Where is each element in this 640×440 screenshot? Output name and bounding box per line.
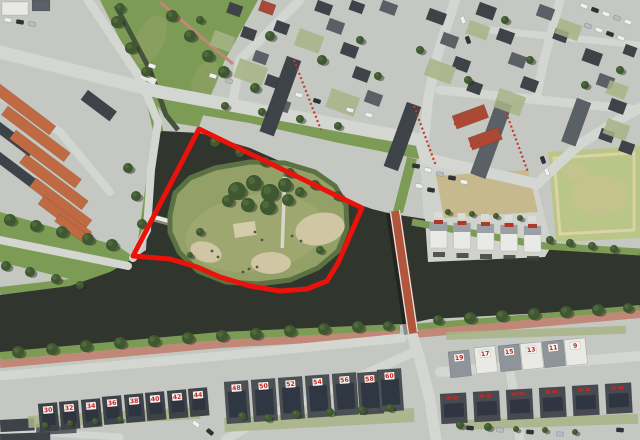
house-number: 56 [340, 377, 349, 385]
tree-highlight [116, 339, 121, 344]
roof-number-marking [486, 394, 491, 397]
solar-panels [336, 383, 356, 410]
tree-highlight [624, 304, 629, 309]
house-number-placard: 50 [258, 382, 269, 391]
play-equipment [242, 271, 245, 274]
house-number-placard: 58 [364, 375, 375, 384]
roof [32, 0, 50, 11]
roof-number-marking [611, 386, 616, 389]
house-number: 48 [232, 385, 241, 393]
roof [2, 2, 28, 15]
solar-panels [444, 403, 465, 418]
house-number-placard: 11 [548, 343, 559, 352]
tree-highlight [197, 229, 201, 233]
solar-panels [106, 406, 120, 419]
tree-highlight [243, 200, 249, 206]
house-number-placard: 19 [454, 353, 465, 362]
tree-highlight [222, 103, 226, 107]
house-number-placard: 34 [86, 402, 97, 411]
tree-highlight [26, 268, 31, 273]
tree-highlight [2, 262, 7, 267]
tree-highlight [611, 246, 615, 250]
tree-highlight [594, 306, 599, 311]
solar-panels [149, 402, 163, 415]
house [572, 385, 600, 416]
tree-highlight [224, 197, 229, 202]
house [440, 393, 468, 424]
tree-highlight [239, 413, 243, 417]
house-number: 38 [130, 398, 139, 406]
solar-panels [609, 393, 630, 408]
garden-shed [481, 214, 489, 220]
tree-highlight [266, 32, 271, 37]
tree-highlight [218, 332, 223, 337]
tree-highlight [547, 237, 551, 241]
house-number-placard: 30 [43, 406, 54, 415]
tree-highlight [197, 17, 201, 21]
tree-highlight [457, 422, 461, 426]
garden-shed [458, 213, 466, 219]
solar-panels [282, 387, 302, 414]
house-number-placard: 42 [172, 393, 183, 402]
solar-panels [361, 382, 381, 409]
house-number-placard: 17 [480, 349, 491, 358]
tree-highlight [357, 37, 361, 41]
tree-highlight [48, 345, 53, 350]
roof-number-marking [479, 394, 484, 397]
house-number: 19 [455, 354, 464, 362]
field-dry-patch [572, 175, 628, 215]
tree-highlight [6, 216, 11, 221]
play-equipment [211, 250, 214, 253]
dock [527, 256, 539, 261]
tree-highlight [446, 210, 449, 213]
tree-highlight [327, 409, 331, 413]
solar-panels [309, 385, 329, 412]
house-number: 54 [313, 379, 323, 387]
field-dry-patch [563, 163, 587, 181]
roof-number-marking [519, 392, 524, 395]
solar-panels [381, 379, 401, 406]
car [616, 428, 624, 433]
tree-highlight [617, 67, 621, 71]
tree-highlight [82, 342, 87, 347]
tree-highlight [52, 275, 57, 280]
tree-highlight [188, 253, 191, 256]
dock [433, 252, 445, 257]
tree-highlight [259, 109, 263, 113]
tree-highlight [77, 282, 81, 286]
house [605, 383, 633, 414]
tree-highlight [84, 235, 89, 240]
solar-panels [171, 400, 185, 413]
house [506, 389, 534, 420]
tree-highlight [318, 56, 323, 61]
roof-number-marking [446, 396, 451, 399]
solar-panels [128, 404, 142, 417]
house-number-placard: 54 [312, 378, 323, 387]
tree-highlight [297, 116, 301, 120]
tree-highlight [248, 177, 255, 184]
roof-number-marking [453, 396, 458, 399]
tree-highlight [280, 180, 286, 186]
tree-highlight [113, 18, 118, 23]
tree-highlight [335, 123, 339, 127]
tree-highlight [567, 240, 571, 244]
solar-panels [510, 399, 531, 414]
play-equipment [300, 240, 303, 243]
house-number-placard: 36 [107, 399, 118, 408]
tree-highlight [485, 424, 489, 428]
car [526, 430, 534, 435]
garden-shed [528, 216, 536, 222]
tree-highlight [150, 337, 155, 342]
tree-highlight [434, 316, 439, 321]
house-number: 50 [259, 383, 269, 391]
tree-highlight [375, 73, 379, 77]
tree-highlight [168, 12, 173, 17]
tree-highlight [293, 411, 297, 415]
tree-highlight [204, 52, 209, 57]
tree-highlight [132, 192, 137, 197]
house-number-placard: 9 [570, 341, 581, 350]
tree-highlight [43, 423, 46, 426]
tree-highlight [58, 228, 63, 233]
house-number: 11 [549, 344, 558, 352]
tree-highlight [582, 82, 586, 86]
red-roof-ridge [505, 223, 514, 227]
house-number-placard: 32 [64, 404, 75, 413]
house-number: 17 [481, 350, 490, 358]
tree-highlight [286, 327, 291, 332]
garden-shed [434, 212, 442, 218]
house-number-placard: 38 [129, 397, 140, 406]
dock [457, 253, 469, 258]
tree-highlight [354, 323, 359, 328]
car [556, 432, 564, 437]
play-equipment [248, 268, 251, 271]
tree-highlight [502, 17, 506, 21]
tree-highlight [186, 32, 191, 37]
house-number-placard: 60 [384, 372, 395, 381]
tree-highlight [124, 164, 129, 169]
house-number-placard: 15 [504, 347, 515, 356]
tree-highlight [589, 243, 593, 247]
tree-highlight [93, 419, 96, 422]
roof-number-marking [552, 390, 557, 393]
car [496, 428, 504, 433]
tree-highlight [417, 47, 421, 51]
tree-highlight [514, 427, 517, 430]
red-roof-ridge [528, 224, 537, 228]
tree-highlight [320, 325, 325, 330]
tree-highlight [263, 186, 271, 194]
aerial-scene: 3032343638404244485052545658601917151311… [0, 0, 640, 440]
tree-highlight [32, 222, 37, 227]
solar-panels [543, 397, 564, 412]
tree-highlight [230, 184, 238, 192]
roof-number-marking [545, 390, 550, 393]
house-number: 44 [194, 392, 204, 400]
house-number: 13 [527, 346, 536, 354]
house-number-placard: 44 [193, 391, 204, 400]
solar-panels [255, 389, 275, 416]
solar-panels [576, 395, 597, 410]
tree-highlight [543, 428, 546, 431]
tree-highlight [527, 57, 531, 61]
tree-highlight [465, 77, 469, 81]
tree-highlight [530, 310, 535, 315]
solar-panels [192, 398, 206, 411]
roof-number-marking [618, 386, 623, 389]
tree-highlight [14, 348, 19, 353]
house-number-placard: 52 [285, 380, 296, 389]
tree-highlight [220, 68, 225, 73]
dock [504, 255, 516, 260]
tree-highlight [317, 247, 321, 251]
solar-panels [477, 401, 498, 416]
roof-number-marking [512, 392, 517, 395]
garden-shed [505, 215, 513, 221]
tree-highlight [184, 334, 189, 339]
tree-highlight [252, 330, 257, 335]
house [539, 387, 567, 418]
house-number: 34 [87, 403, 97, 411]
house-number: 40 [151, 396, 161, 404]
red-roof-ridge [481, 222, 490, 226]
tree-highlight [265, 415, 269, 419]
tree-highlight [562, 308, 567, 313]
house-number: 42 [173, 394, 182, 402]
car [466, 426, 474, 431]
tree-highlight [518, 216, 521, 219]
red-roof-ridge [458, 221, 467, 225]
tree-highlight [494, 214, 497, 217]
house-number: 15 [505, 348, 514, 356]
tree-highlight [127, 44, 132, 49]
tree-highlight [116, 4, 121, 9]
roof-number-marking [578, 388, 583, 391]
dock [480, 254, 492, 259]
tree-highlight [108, 241, 113, 246]
house-number: 58 [365, 376, 374, 384]
tree-highlight [498, 312, 503, 317]
house-number: 52 [286, 381, 295, 389]
house-number: 9 [573, 343, 578, 350]
roof-number-marking [585, 388, 590, 391]
tree-highlight [359, 407, 363, 411]
tree-highlight [118, 417, 121, 420]
house-number-placard: 48 [231, 384, 242, 393]
tree-highlight [284, 196, 289, 201]
tree-highlight [296, 188, 301, 193]
house-number: 32 [65, 405, 74, 413]
island-sand-patch [251, 252, 291, 274]
house-number: 60 [385, 373, 395, 381]
red-roof-ridge [434, 220, 443, 224]
tree-highlight [573, 430, 576, 433]
tree-highlight [466, 314, 471, 319]
tree-highlight [262, 201, 269, 208]
tree-highlight [138, 220, 143, 225]
play-equipment [261, 239, 264, 242]
tree-highlight [142, 68, 147, 73]
tree-highlight [68, 421, 71, 424]
house-number-placard: 13 [526, 345, 537, 354]
play-equipment [254, 231, 257, 234]
tree-highlight [251, 84, 256, 89]
tree-highlight [470, 212, 473, 215]
house [473, 391, 501, 422]
play-equipment [256, 266, 259, 269]
tree-highlight [384, 322, 389, 327]
tree-highlight [387, 405, 391, 409]
play-equipment [291, 235, 294, 238]
house-number: 30 [44, 407, 54, 415]
house-number-placard: 40 [150, 395, 161, 404]
house-number: 36 [108, 400, 117, 408]
play-equipment [217, 256, 220, 259]
aerial-map: 3032343638404244485052545658601917151311… [0, 0, 640, 440]
house-number-placard: 56 [339, 376, 350, 385]
